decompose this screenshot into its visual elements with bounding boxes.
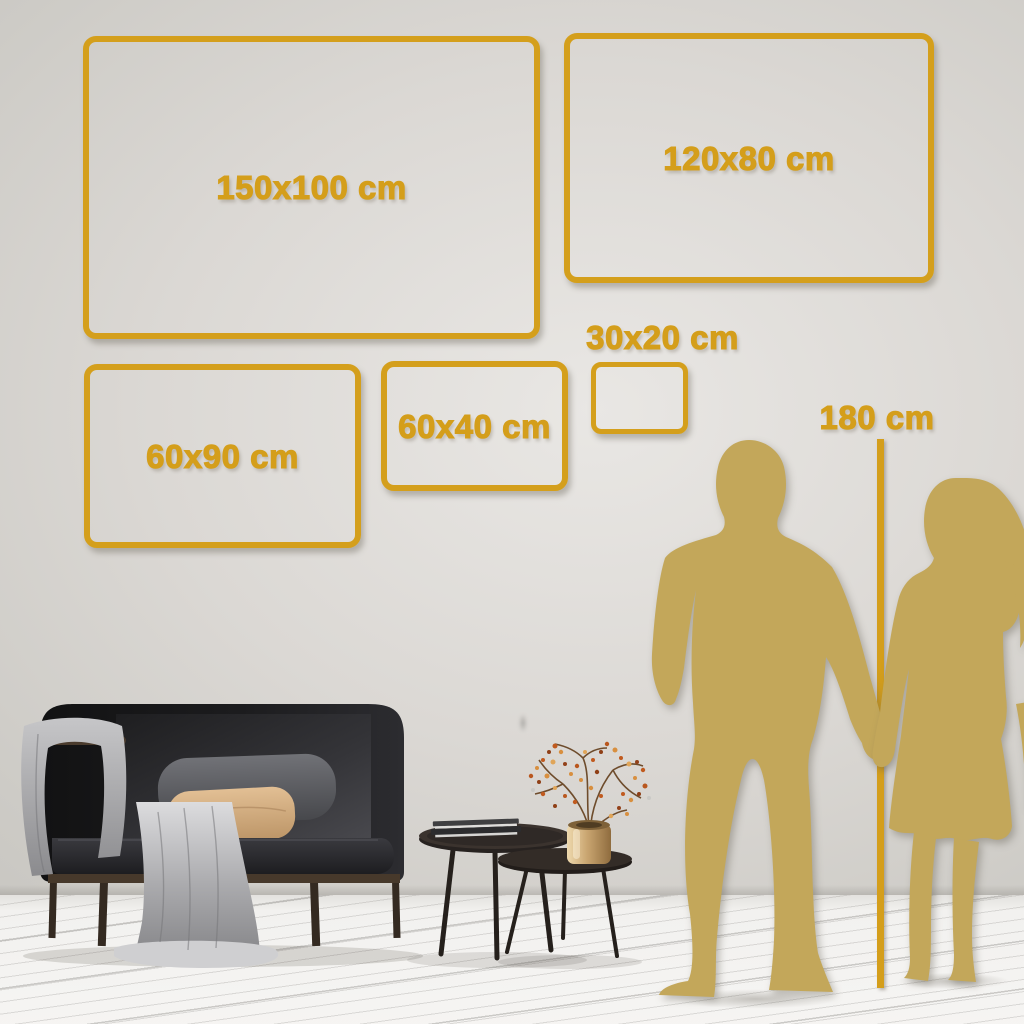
size-label-60x40: 60x40 cm: [398, 410, 551, 443]
sofa-illustration: [8, 690, 428, 975]
large-table: [419, 823, 571, 958]
size-label-150x100: 150x100 cm: [216, 171, 406, 204]
wall-smudge: [517, 710, 529, 736]
small-table: [498, 848, 632, 956]
size-label-120x80: 120x80 cm: [663, 142, 834, 175]
woman-silhouette: [856, 466, 1024, 991]
size-frame-60x90: 60x90 cm: [84, 364, 361, 548]
woman-arm-edge: [1016, 702, 1024, 810]
size-label-60x90: 60x90 cm: [146, 440, 299, 473]
size-frame-60x40: 60x40 cm: [381, 361, 568, 491]
size-label-30x20: 30x20 cm: [575, 321, 750, 354]
size-frame-150x100: 150x100 cm: [83, 36, 540, 339]
brass-vase: [567, 820, 611, 864]
size-frame-120x80: 120x80 cm: [564, 33, 934, 283]
woman-leg-right: [948, 838, 979, 982]
coffee-tables-illustration: [405, 736, 670, 970]
size-frame-30x20: [591, 362, 688, 434]
height-marker-label: 180 cm: [802, 401, 952, 434]
size-guide-scene: 150x100 cm 120x80 cm 60x90 cm 60x40 cm 3…: [0, 0, 1024, 1024]
woman-leg-left: [904, 832, 936, 981]
woman-body: [872, 478, 1024, 840]
books-stack: [431, 818, 522, 837]
